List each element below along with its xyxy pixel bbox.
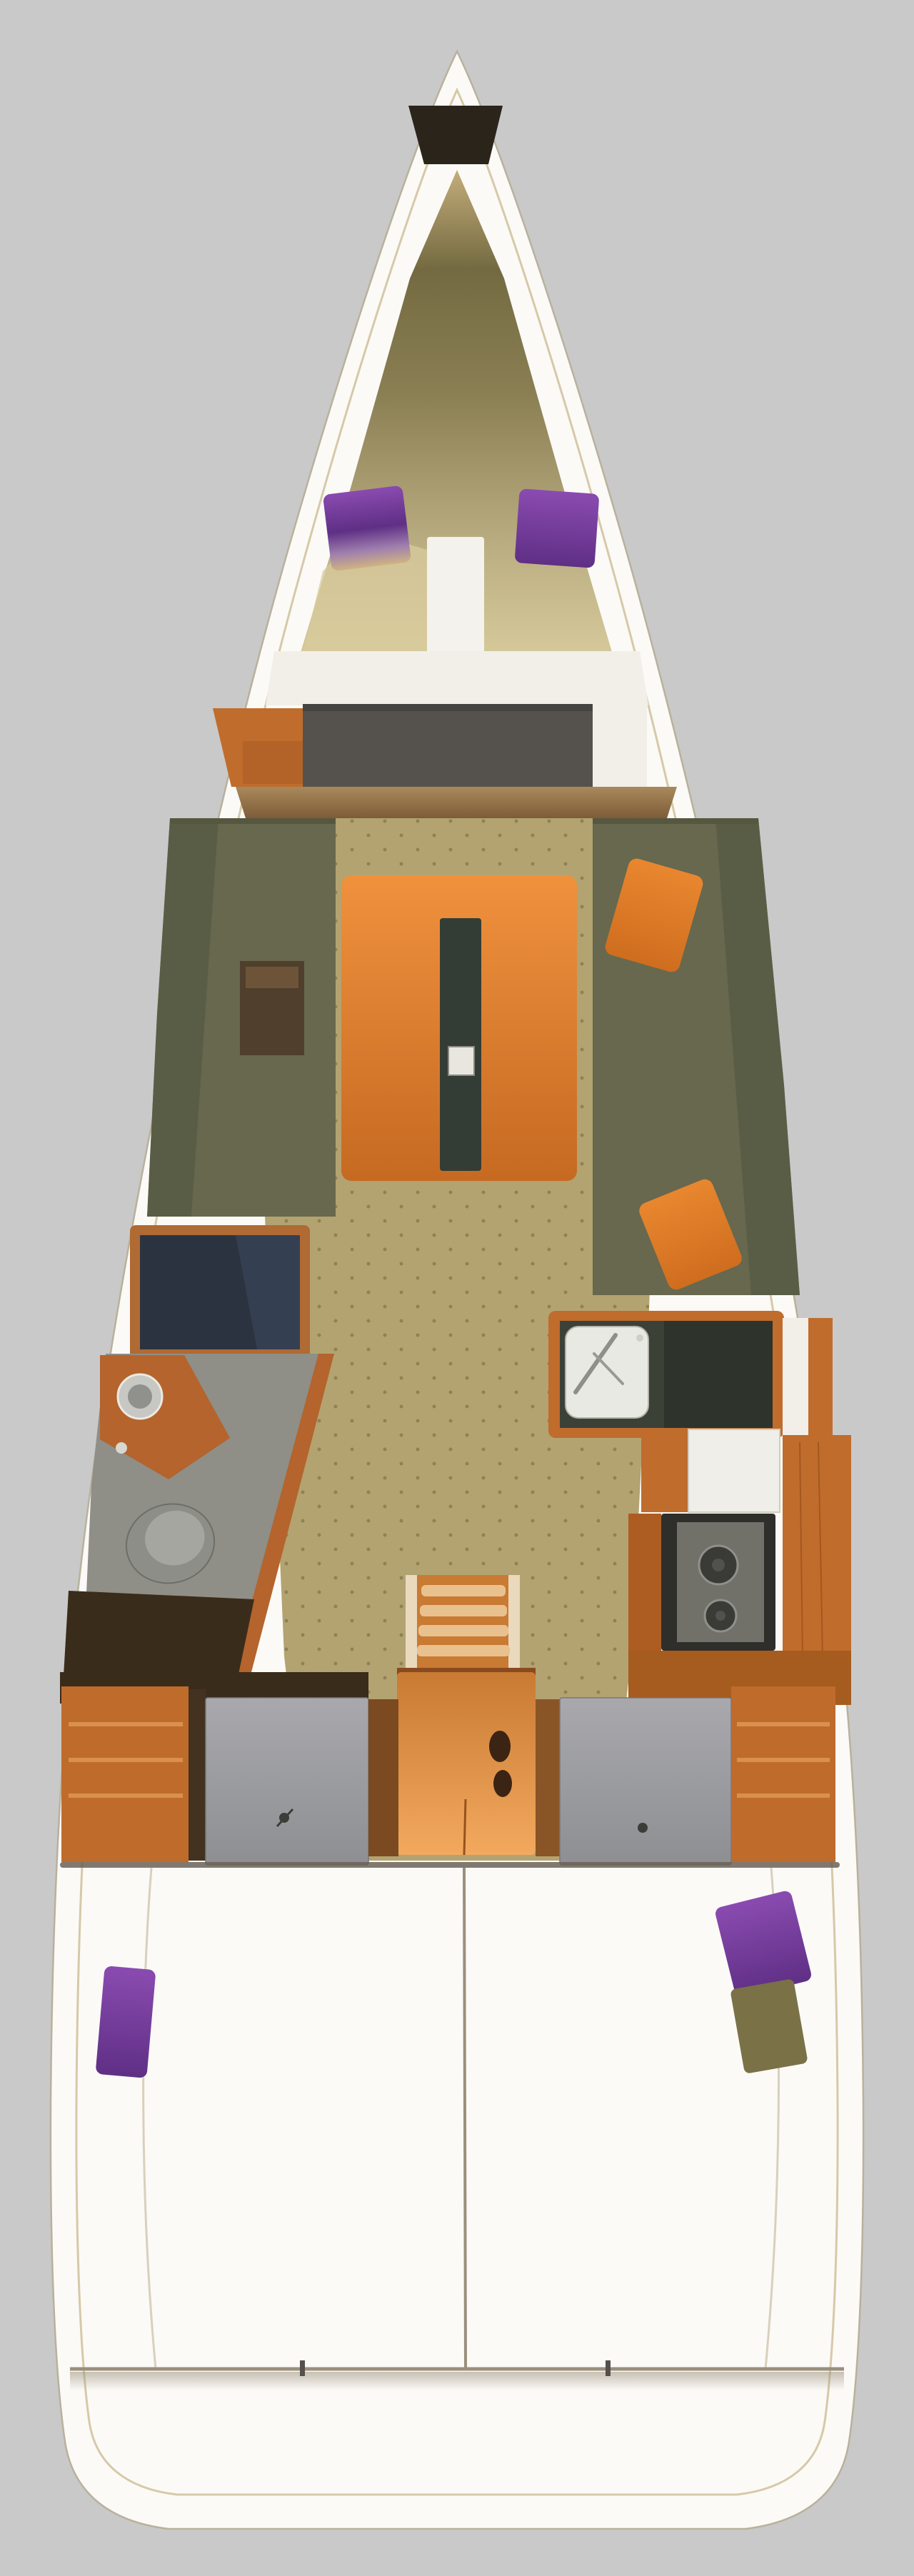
boat-floorplan-image [0, 0, 914, 2576]
port-aft-cabin-door [206, 1698, 368, 1865]
v-berth-pillow-starboard [515, 488, 600, 568]
fridge-lid [688, 1429, 780, 1512]
stove-burner-2-center [715, 1611, 725, 1621]
aft-pillow-port [96, 1966, 156, 2078]
starboard-wardrobe [731, 1686, 835, 1862]
aft-berth-divider [464, 1868, 466, 2369]
port-settee-lip [170, 818, 336, 824]
galley-side-deck-strip [783, 1318, 808, 1435]
mast-step [448, 1047, 474, 1075]
companionway-tread-3 [418, 1625, 508, 1636]
bulkhead-post-left [368, 1699, 398, 1856]
head-faucet-knob [116, 1442, 127, 1454]
anchor-locker [408, 106, 503, 164]
forward-dresser-edge [303, 704, 593, 711]
galley-cabinet-mid [641, 1429, 688, 1512]
floorplan-svg [0, 0, 914, 2576]
starboard-wardrobe-shelf-2 [737, 1758, 830, 1762]
forward-cabinet-shade [243, 741, 303, 784]
companionway-handle-2 [493, 1770, 512, 1797]
salon-table-center-strip [440, 918, 481, 1171]
companionway-platform [397, 1672, 536, 1855]
forward-dresser [303, 704, 593, 787]
aft-bulkhead-seam [60, 1862, 840, 1868]
starboard-aft-cabin-door [560, 1698, 731, 1865]
companionway-tread-1 [421, 1585, 506, 1596]
stove-side-cabinet [628, 1514, 661, 1651]
transom-seam-shade [70, 2372, 844, 2390]
galley-hull-cabinet-upper [808, 1318, 833, 1435]
port-door-gap [189, 1689, 206, 1861]
companionway-tread-2 [420, 1605, 507, 1616]
port-wardrobe-shelf-1 [69, 1722, 183, 1726]
port-wardrobe-shelf-2 [69, 1758, 183, 1762]
starboard-wardrobe-shelf-1 [737, 1722, 830, 1726]
starboard-wardrobe-shelf-3 [737, 1793, 830, 1798]
foredeck-band [266, 651, 648, 705]
port-wardrobe [61, 1686, 189, 1862]
stove-burner-1-center [712, 1559, 725, 1571]
companionway-tread-4 [417, 1645, 510, 1656]
head-sink-drain [128, 1384, 152, 1409]
forward-deck-gap [593, 704, 647, 787]
companionway-rail-right [508, 1575, 520, 1672]
starboard-settee-lip [593, 818, 758, 824]
v-berth-pillow-port [323, 485, 411, 572]
galley-sink [566, 1327, 648, 1418]
galley-counter-top-right [664, 1321, 773, 1428]
transom-tick-starboard [606, 2360, 611, 2376]
companionway-rail-left [406, 1575, 417, 1672]
companionway-handle-1 [489, 1731, 511, 1762]
v-berth-divider [427, 537, 484, 667]
port-wardrobe-shelf-3 [69, 1793, 183, 1798]
galley-counter-dot [636, 1334, 643, 1342]
companionway-seam [464, 1799, 466, 1855]
transom-tick-port [300, 2360, 305, 2376]
bulkhead-post-right [536, 1699, 560, 1856]
galley-hull-cabinet [783, 1435, 851, 1664]
starboard-door-handle [638, 1823, 648, 1833]
forward-bulkhead [236, 787, 677, 818]
port-settee-locker-top [246, 967, 298, 988]
